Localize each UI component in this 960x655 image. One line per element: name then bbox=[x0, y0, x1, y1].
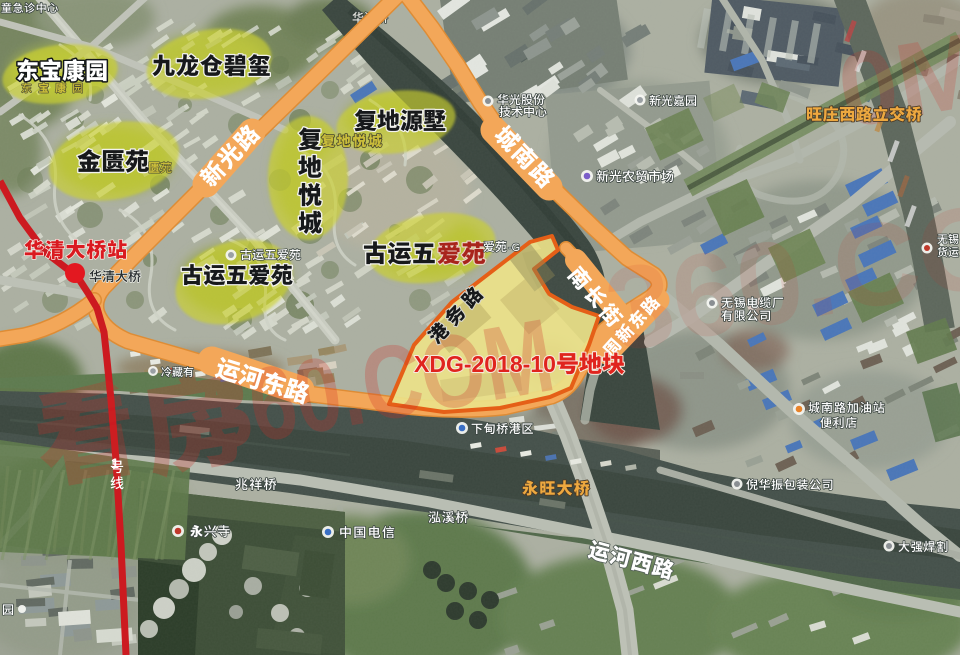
svg-text:XDG-2018-10: XDG-2018-10 bbox=[414, 351, 556, 377]
svg-text:-G: -G bbox=[508, 242, 520, 254]
svg-text:0M: 0M bbox=[830, 10, 960, 151]
